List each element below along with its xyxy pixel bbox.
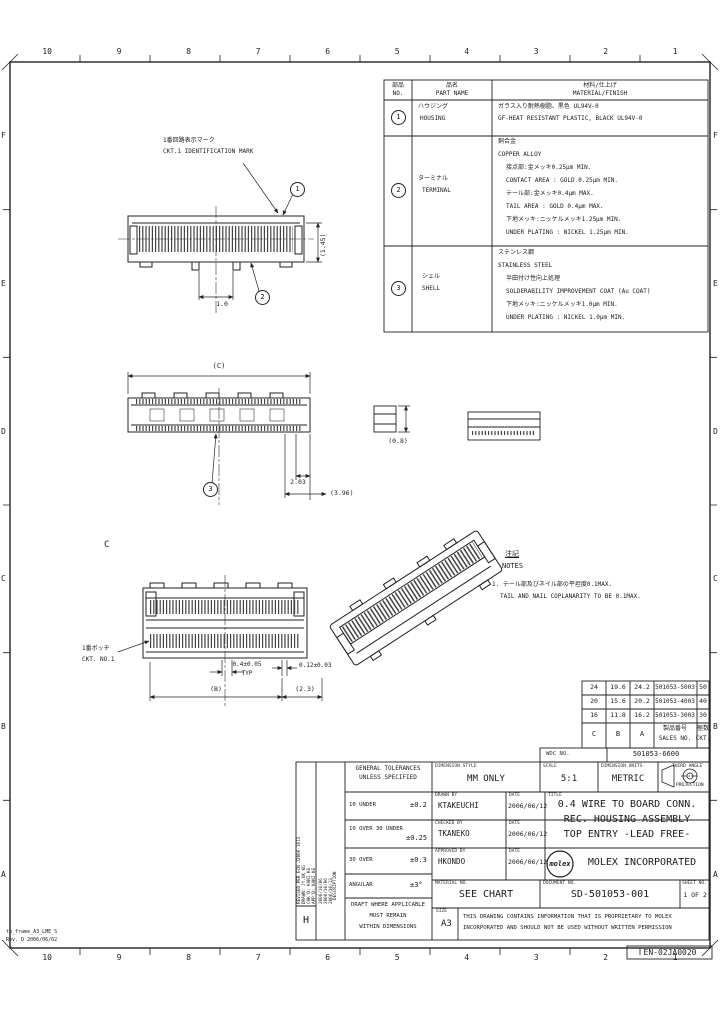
- revision-detail-lines: REVISED PER ECN J2006-1013 DRAWN: JY.UK …: [298, 766, 318, 904]
- part-name-housing-en: HOUSING: [420, 116, 445, 123]
- balloon-ref-1: 1: [290, 182, 305, 197]
- chart-header-ckt-en: CKT.: [696, 736, 710, 743]
- material-shell-line: 下地メッキ:ニッケルメッキ1.0μm MIN.: [506, 302, 618, 309]
- draft-note-line3: WITHIN DIMENSIONS: [359, 924, 416, 930]
- material-header-mat-jp: 材料/仕上げ: [583, 83, 617, 90]
- approved-by-value: HKONDO: [438, 858, 465, 867]
- zone-column-label: 7: [256, 953, 261, 962]
- dimension-units-label: DIMENSION UNITS: [601, 764, 643, 769]
- drawing-title-line1: 0.4 WIRE TO BOARD CONN.: [558, 799, 696, 811]
- zone-column-label: 10: [42, 953, 52, 962]
- note-item-en: TAIL AND NAIL COPLANARITY TO BE 0.1MAX.: [500, 594, 641, 601]
- zone-row-label: C: [713, 574, 718, 583]
- tolerance-range: ANGULAR: [349, 882, 373, 888]
- view2-top: [128, 372, 540, 505]
- material-shell-line: STAINLESS STEEL: [498, 263, 552, 270]
- drawn-by-value: KTAKEUCHI: [438, 802, 479, 811]
- part-name-terminal-jp: ターミナル: [418, 176, 448, 183]
- material-terminal-line: 下地メッキ:ニッケルメッキ1.25μm MIN.: [506, 217, 621, 224]
- tolerance-value: ±0.25: [406, 834, 427, 842]
- balloon-housing: 1: [391, 110, 406, 125]
- chart-cell-b: 19.6: [610, 684, 626, 691]
- zone-row-label: A: [1, 870, 6, 879]
- material-terminal-line: COPPER ALLOY: [498, 152, 541, 159]
- chart-header-a: A: [640, 730, 644, 738]
- section-label-c: C: [104, 540, 109, 550]
- general-tolerances-line1: GENERAL TOLERANCES: [355, 766, 420, 773]
- material-housing-line: GF-HEAT RESISTANT PLASTIC, BLACK UL94V-0: [498, 116, 643, 123]
- chart-header-b: B: [616, 730, 620, 738]
- ckt1-mark-callout-jp: 1番回路表示マーク: [163, 138, 215, 145]
- proprietary-note-line1: THIS DRAWING CONTAINS INFORMATION THAT I…: [463, 914, 672, 920]
- zone-column-label: 3: [534, 47, 539, 56]
- size-label: SIZE: [436, 909, 447, 914]
- dimension-style-value: MM ONLY: [467, 774, 505, 784]
- zone-column-label: 9: [117, 953, 122, 962]
- zone-column-label: 2: [603, 47, 608, 56]
- chart-cell-ckt: 40: [699, 698, 707, 705]
- zone-column-label: 8: [186, 953, 191, 962]
- checked-date-value: 2006/06/12: [508, 831, 547, 838]
- drawing-title-line2: REC. HOUSING ASSEMBLY: [564, 814, 690, 826]
- drawn-date-value: 2006/06/12: [508, 803, 547, 810]
- zone-row-label: B: [1, 722, 6, 731]
- chart-cell-sales: 501053-5003: [655, 685, 695, 692]
- dim-label-c-width: (C): [213, 362, 226, 370]
- chart-cell-c: 24: [590, 684, 598, 691]
- zone-column-label: 2: [603, 953, 608, 962]
- projection-label-line2: PROJECTION: [676, 783, 704, 788]
- molex-logo-text: molex: [549, 860, 570, 868]
- dim-label-pitch-typ: TYP: [242, 671, 253, 678]
- material-shell-line: UNDER PLATING : NICKEL 1.0μm MIN.: [506, 315, 625, 322]
- dim-label-b-span: (B): [210, 686, 222, 693]
- revision-letter: H: [303, 915, 309, 927]
- chart-cell-b: 11.8: [610, 712, 626, 719]
- zone-rows-right: F E D C B A: [713, 62, 718, 948]
- material-header-part-jp: 品名: [446, 83, 458, 90]
- scale-value: 5:1: [561, 774, 577, 784]
- zone-row-label: E: [1, 279, 6, 288]
- zone-column-label: 10: [42, 47, 52, 56]
- dim-label-1-45: (1.45): [320, 234, 327, 257]
- part-name-housing-jp: ハウジング: [418, 104, 448, 111]
- note-item-jp: 1. テール部及びネイル部の平坦度0.1MAX.: [492, 582, 612, 589]
- zone-row-label: F: [713, 131, 718, 140]
- zone-column-label: 4: [464, 47, 469, 56]
- balloon-terminal: 2: [391, 183, 406, 198]
- approved-by-label: APPROVED BY: [435, 849, 465, 854]
- zone-column-label: 4: [464, 953, 469, 962]
- chart-cell-ckt: 50: [699, 684, 707, 691]
- zone-column-label: 6: [325, 47, 330, 56]
- zone-row-label: E: [713, 279, 718, 288]
- sheet-no-label: SHEET NO.: [682, 881, 707, 886]
- zone-column-label: 9: [117, 47, 122, 56]
- chart-cell-b: 15.6: [610, 698, 626, 705]
- drawing-title-line3: TOP ENTRY -LEAD FREE-: [564, 829, 690, 841]
- chart-cell-ckt: 30: [699, 712, 707, 719]
- notes-title-jp: 注記: [505, 550, 519, 558]
- dimension-style-label: DIMENSION STYLE: [435, 764, 477, 769]
- material-no-label: MATERIAL NO.: [435, 881, 468, 886]
- chart-cell-c: 20: [590, 698, 598, 705]
- tolerance-range: 10 OVER 30 UNDER: [349, 826, 403, 832]
- balloon-ref-3: 3: [203, 482, 218, 497]
- part-name-shell-en: SHELL: [422, 286, 440, 293]
- chart-cell-a: 16.2: [634, 712, 650, 719]
- zone-rows-left: F E D C B A: [1, 62, 6, 948]
- chart-header-sales-en: SALES NO.: [659, 736, 692, 743]
- frame-id-text: tb_frame_A3_LME_S: [6, 930, 57, 936]
- chart-cell-a: 24.2: [634, 684, 650, 691]
- general-tolerances-line2: UNLESS SPECIFIED: [359, 775, 417, 782]
- material-shell-line: ステンレス鋼: [498, 250, 534, 257]
- tolerance-value: ±0.3: [410, 856, 427, 864]
- drawn-date-label: DATE: [509, 793, 520, 798]
- approved-date-label: DATE: [509, 849, 520, 854]
- draft-note-line1: DRAFT WHERE APPLICABLE: [351, 902, 425, 908]
- drawn-by-label: DRAWN BY: [435, 793, 457, 798]
- material-terminal-line: テール部:金メッキ0.4μm MAX.: [506, 191, 594, 198]
- company-name: MOLEX INCORPORATED: [588, 857, 696, 869]
- zone-row-label: D: [713, 427, 718, 436]
- document-no-value: SD-501053-001: [571, 889, 649, 901]
- dim-label-0-8: (0.8): [388, 438, 408, 445]
- checked-by-label: CHECKED BY: [435, 821, 463, 826]
- approved-date-value: 2006/06/12: [508, 859, 547, 866]
- balloon-ref-2: 2: [255, 290, 270, 305]
- chart-cell-sales: 501053-4003: [655, 699, 695, 706]
- zone-columns-top: 10 9 8 7 6 5 4 3 2 1: [10, 47, 710, 56]
- material-terminal-line: CONTACT AREA : GOLD 0.25μm MIN.: [506, 178, 618, 185]
- material-no-value: SEE CHART: [459, 889, 513, 901]
- chart-cell-sales: 501053-3003: [655, 713, 695, 720]
- size-value: A3: [441, 919, 452, 929]
- footer-code: EN-02JA0020: [644, 948, 697, 957]
- proprietary-note-line2: INCORPORATED AND SHOULD NOT BE USED WITH…: [463, 925, 672, 931]
- chart-header-c: C: [592, 730, 596, 738]
- material-shell-line: 半田付け性向上処理: [506, 276, 560, 283]
- tolerance-range: 10 UNDER: [349, 802, 376, 808]
- ckt1-botch-callout-en: CKT. NO.1: [82, 657, 115, 664]
- revision-description-text: DESCRIPTION: [334, 790, 339, 900]
- material-header-part-en: PART NAME: [436, 91, 469, 98]
- dim-label-3-96: (3.96): [330, 490, 353, 497]
- revision-description-label: DESCRIPTION: [334, 790, 339, 900]
- zone-column-label: 8: [186, 47, 191, 56]
- chart-header-ckt-jp: 極数: [697, 726, 709, 733]
- chart-header-sales-jp: 製品番号: [663, 726, 687, 733]
- ckt1-mark-callout-en: CKT.1 IDENTIFICATION MARK: [163, 149, 253, 156]
- material-terminal-line: 接点部:金メッキ0.25μm MIN.: [506, 165, 591, 172]
- wdc-no-label: WDC NO.: [546, 751, 570, 757]
- material-terminal-line: 銅合金: [498, 139, 516, 146]
- tolerance-value: ±3°: [410, 881, 423, 889]
- part-name-terminal-en: TERMINAL: [422, 188, 451, 195]
- material-housing-line: ガラス入り耐熱樹脂、黒色 UL94V-0: [498, 104, 599, 111]
- dim-label-2-03: 2.03: [290, 479, 306, 486]
- material-header-no-jp: 部品: [392, 83, 404, 90]
- material-header-no-en: NO.: [393, 91, 404, 98]
- ckt1-botch-callout-jp: 1番ボッチ: [82, 646, 110, 653]
- balloon-shell: 3: [391, 281, 406, 296]
- zone-column-label: 5: [395, 953, 400, 962]
- tolerance-value: ±0.2: [410, 801, 427, 809]
- zone-column-label: 3: [534, 953, 539, 962]
- checked-by-value: TKANEKO: [438, 830, 470, 839]
- zone-column-label: 7: [256, 47, 261, 56]
- scale-label: SCALE: [543, 764, 557, 769]
- dim-label-1-0: 1.0: [216, 301, 228, 308]
- chart-cell-a: 20.2: [634, 698, 650, 705]
- chart-cell-c: 16: [590, 712, 598, 719]
- part-name-shell-jp: シェル: [422, 274, 440, 281]
- material-terminal-line: UNDER PLATING : NICKEL 1.25μm MIN.: [506, 230, 629, 237]
- zone-row-label: B: [713, 722, 718, 731]
- frame-rev-text: Rev. D 2006/06/02: [6, 938, 57, 944]
- tolerance-range: 30 OVER: [349, 857, 373, 863]
- checked-date-label: DATE: [509, 821, 520, 826]
- zone-columns-bottom: 10 9 8 7 6 5 4 3 2 1: [10, 953, 710, 962]
- material-header-mat-en: MATERIAL/FINISH: [573, 91, 627, 98]
- material-shell-line: SOLDERABILITY IMPROVEMENT COAT (Au COAT): [506, 289, 651, 296]
- material-terminal-line: TAIL AREA : GOLD 0.4μm MAX.: [506, 204, 604, 211]
- zone-row-label: D: [1, 427, 6, 436]
- zone-column-label: 1: [673, 47, 678, 56]
- zone-row-label: C: [1, 574, 6, 583]
- zone-row-label: A: [713, 870, 718, 879]
- dimension-units-value: METRIC: [612, 774, 645, 784]
- wdc-no-value: 501053-6600: [633, 750, 679, 758]
- sheet-no-value: 1 OF 2: [683, 892, 706, 899]
- dim-label-pitch: 0.4±0.05: [233, 662, 262, 669]
- draft-note-line2: MUST REMAIN: [369, 913, 406, 919]
- zone-column-label: 5: [395, 47, 400, 56]
- view4-isometric: [326, 526, 505, 670]
- drawing-sheet: 10 9 8 7 6 5 4 3 2 1 10 9 8 7 6 5 4 3 2 …: [0, 0, 720, 1012]
- projection-label-line1: THIRD ANGLE: [672, 764, 702, 769]
- revision-line: APP'D: KANI KG: [313, 766, 318, 904]
- zone-row-label: F: [1, 131, 6, 140]
- document-no-label: DOCUMENT NO.: [543, 881, 576, 886]
- dim-label-0-12: 0.12±0.03: [299, 663, 332, 670]
- dim-label-2-3: (2.3): [295, 686, 315, 693]
- title-label: TITLE: [548, 793, 562, 798]
- notes-title-en: NOTES: [502, 562, 523, 570]
- zone-column-label: 6: [325, 953, 330, 962]
